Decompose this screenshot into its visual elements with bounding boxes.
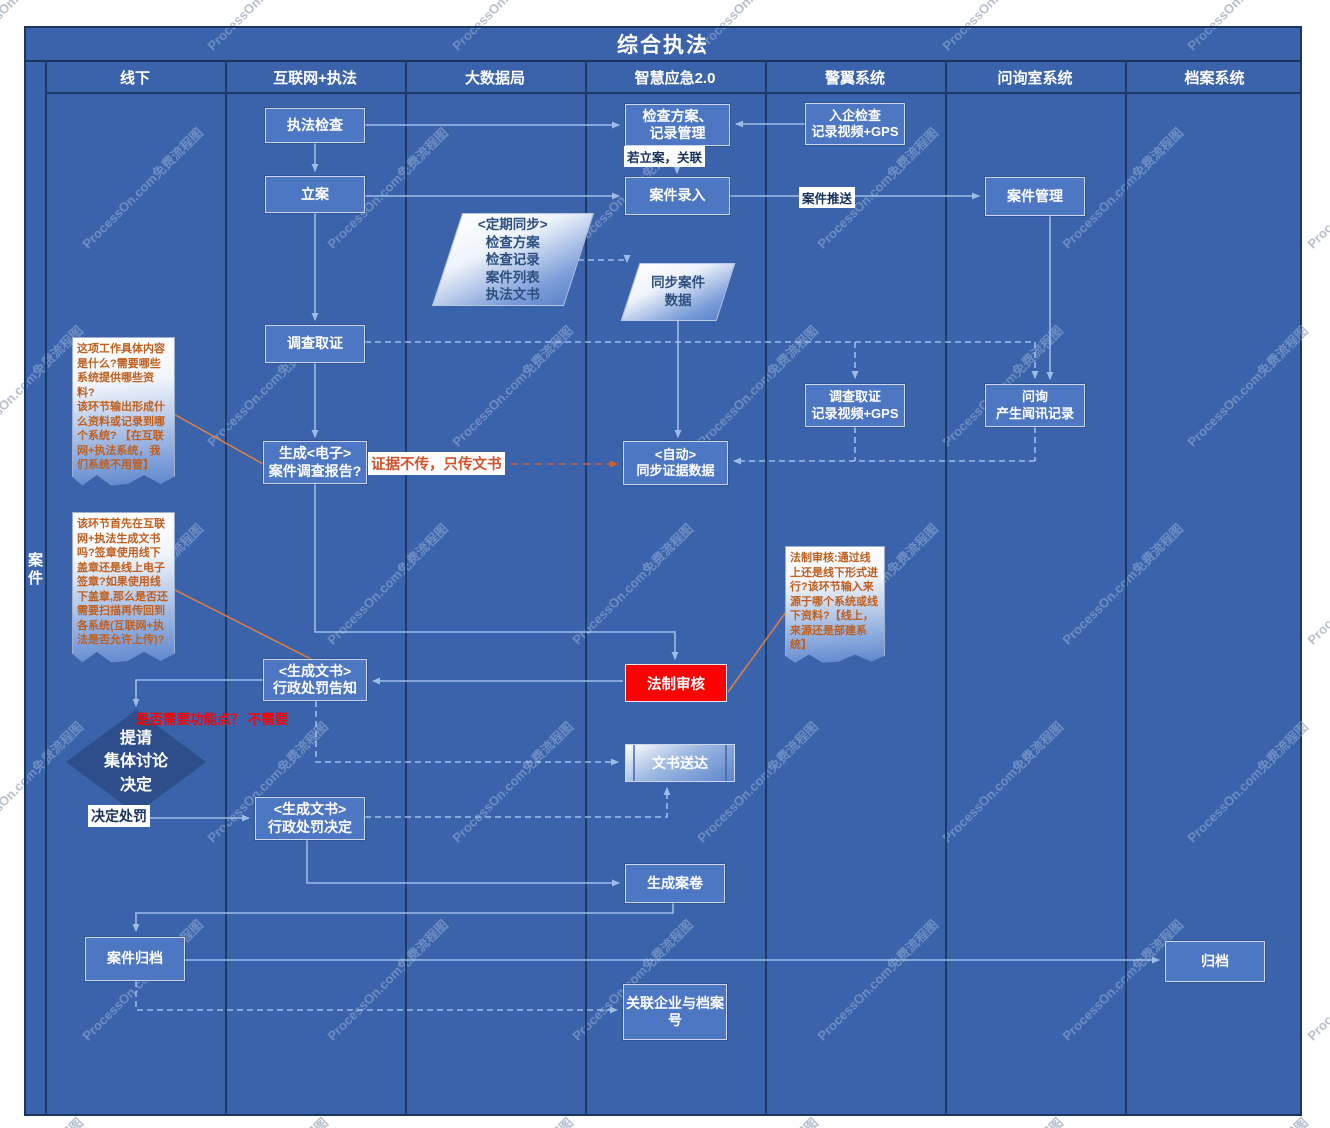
- node-onsite-inspection-recording[interactable]: 入企检查 记录视频+GPS: [805, 103, 905, 145]
- node-legal-review[interactable]: 法制审核: [625, 664, 727, 702]
- node-document-delivery[interactable]: 文书送达: [625, 744, 735, 782]
- node-enforcement-check[interactable]: 执法检查: [265, 108, 365, 143]
- label-need-function-point: 是否需要功能点？ 不需要: [136, 708, 288, 728]
- connectors: [0, 0, 1330, 1128]
- node-case-filing[interactable]: 立案: [265, 176, 365, 213]
- node-investigation[interactable]: 调查取证: [265, 325, 365, 363]
- node-penalty-decision[interactable]: <生成文书> 行政处罚决定: [255, 797, 365, 840]
- node-sync-case-data[interactable]: 同步案件 数据: [621, 263, 736, 321]
- node-inquiry-record[interactable]: 问询 产生闻讯记录: [985, 384, 1085, 427]
- edge-label-decide-penalty: 决定处罚: [88, 805, 150, 827]
- annotation-investigation-question[interactable]: 这项工作具体内容是什么?需要哪些系统提供哪些资料? 该环节输出形成什么资料或记录…: [72, 337, 175, 487]
- node-penalty-notice[interactable]: <生成文书> 行政处罚告知: [263, 659, 367, 701]
- node-investigation-recording[interactable]: 调查取证 记录视频+GPS: [805, 384, 905, 427]
- node-link-enterprise-archive[interactable]: 关联企业与档案 号: [623, 984, 727, 1040]
- flowchart-canvas: ProcessOn.com免费流程图ProcessOn.com免费流程图Proc…: [0, 0, 1330, 1128]
- edge-label-if-filed: 若立案，关联: [624, 146, 705, 167]
- node-case-management[interactable]: 案件管理: [985, 177, 1085, 216]
- node-auto-sync-evidence[interactable]: <自动> 同步证据数据: [623, 441, 728, 485]
- annotation-legal-review-question[interactable]: 法制审核:通过线上还是线下形式进行?该环节输入来源于哪个系统或线下资料?【线上，…: [785, 546, 885, 664]
- annotation-document-question[interactable]: 该环节首先在互联网+执法生成文书吗?签章使用线下盖章还是线上电子签章?如果使用线…: [72, 512, 175, 664]
- node-archive[interactable]: 归档: [1165, 941, 1265, 982]
- node-generate-investigation-report[interactable]: 生成<电子> 案件调查报告?: [263, 441, 367, 484]
- edge-label-case-push: 案件推送: [799, 187, 855, 208]
- node-case-archive-offline[interactable]: 案件归档: [85, 937, 185, 981]
- node-case-entry[interactable]: 案件录入: [625, 177, 730, 215]
- node-generate-case-file[interactable]: 生成案卷: [625, 864, 725, 903]
- edge-label-evidence-not-transferred: 证据不传，只传文书: [368, 452, 505, 475]
- node-inspection-plan-record-mgmt[interactable]: 检查方案、 记录管理: [625, 104, 730, 146]
